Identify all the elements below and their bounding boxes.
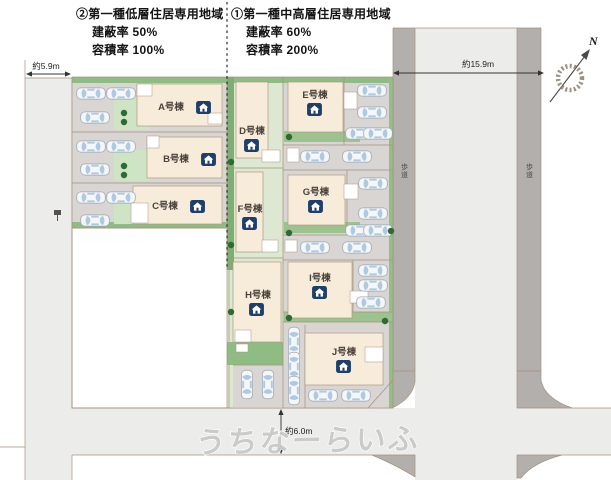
tree-icon	[286, 134, 292, 140]
car-icon	[241, 370, 252, 399]
building-f-label: F号棟	[238, 203, 263, 215]
building-e-label: E号棟	[302, 89, 328, 101]
zoning-right-floor-area: 容積率 200%	[245, 42, 318, 57]
zoning-right-coverage: 建蔽率 60%	[245, 24, 311, 39]
building-c-label: C号棟	[152, 200, 178, 212]
zoning-right-title: ①第一種中高層住居専用地域	[231, 6, 391, 21]
building-h-label: H号棟	[245, 289, 271, 301]
car-icon	[81, 215, 110, 226]
house-icon	[307, 103, 322, 116]
lawn-b	[114, 150, 150, 181]
hedge-east-edge	[389, 77, 393, 408]
tree-icon	[286, 230, 292, 236]
junction-fillet-se	[517, 455, 562, 478]
site-plan-drawing: A号棟 B号棟 C号棟 D号棟 E号棟 F号棟 G号棟 H号棟 I号棟 J号棟	[0, 0, 611, 480]
building-i-label: I号棟	[309, 272, 331, 284]
house-icon	[244, 139, 259, 152]
car-icon	[262, 370, 273, 399]
house-icon	[312, 286, 327, 299]
zoning-info: ②第一種低層住居専用地域 建蔽率 50% 容積率 100% ①第一種中高層住居専…	[76, 6, 391, 57]
building-g-label: G号棟	[303, 186, 330, 198]
car-icon	[301, 242, 330, 253]
house-icon	[242, 217, 257, 230]
house-icon	[190, 200, 205, 213]
junction-fillet-ne	[517, 371, 572, 408]
car-icon	[77, 141, 106, 152]
tree-icon	[388, 228, 394, 234]
parking-h	[233, 365, 283, 407]
tree-icon	[228, 159, 234, 165]
house-icon	[196, 101, 211, 114]
car-icon	[288, 327, 299, 356]
car-icon	[357, 297, 386, 308]
east-road-west-sidewalk	[393, 28, 415, 373]
building-a-label: A号棟	[158, 101, 184, 113]
west-road-width-label: 約5.9m	[32, 61, 59, 71]
watermark: うちなーらいふ	[194, 423, 421, 460]
zoning-left-coverage: 建蔽率 50%	[91, 24, 157, 39]
car-icon	[81, 164, 110, 175]
tree-icon	[121, 172, 127, 178]
car-icon	[359, 265, 388, 276]
zoning-left-title: ②第一種低層住居専用地域	[76, 6, 224, 21]
east-road-width-label: 約15.9m	[462, 59, 494, 69]
car-icon	[359, 178, 388, 189]
house-icon	[201, 153, 216, 166]
building-j-label: J号棟	[332, 346, 357, 358]
car-icon	[288, 376, 299, 405]
tree-icon	[382, 318, 388, 324]
site-plan: A号棟 B号棟 C号棟 D号棟 E号棟 F号棟 G号棟 H号棟 I号棟 J号棟	[0, 0, 611, 480]
watermark-text: うちなーらいふ	[194, 423, 421, 460]
car-icon	[364, 128, 393, 139]
car-icon	[107, 141, 136, 152]
compass-icon: N	[550, 34, 599, 102]
house-icon	[308, 200, 323, 213]
house-icon	[249, 303, 264, 316]
north-label: N	[588, 34, 599, 48]
hedge-zone-boundary	[227, 77, 234, 270]
building-d-label: D号棟	[239, 125, 265, 137]
car-icon	[309, 390, 338, 401]
car-icon	[359, 280, 388, 291]
tree-icon	[121, 119, 127, 125]
car-icon	[358, 107, 387, 118]
car-icon	[358, 85, 387, 96]
tree-icon	[228, 309, 234, 315]
lawn-h	[227, 342, 283, 365]
car-icon	[107, 192, 136, 203]
zoning-left-floor-area: 容積率 100%	[91, 42, 164, 57]
car-icon	[359, 208, 388, 219]
car-icon	[343, 242, 372, 253]
car-icon	[77, 88, 106, 99]
tree-icon	[121, 110, 127, 116]
tree-icon	[286, 315, 292, 321]
sidewalk-label-east: 歩道	[526, 162, 534, 179]
sidewalk-label-west: 歩道	[401, 162, 409, 179]
empty-lot	[72, 228, 229, 408]
car-icon	[107, 88, 136, 99]
car-icon	[81, 112, 110, 123]
junction-fillet-sw	[372, 455, 415, 477]
east-roadway	[415, 28, 517, 480]
north-arrowhead	[581, 49, 590, 60]
east-road-east-sidewalk	[517, 28, 541, 373]
car-icon	[77, 192, 106, 203]
tree-icon	[228, 242, 234, 248]
house-icon	[336, 360, 351, 373]
tree-icon	[121, 163, 127, 169]
car-icon	[343, 151, 372, 162]
car-icon	[342, 390, 371, 401]
car-icon	[301, 151, 330, 162]
building-b-label: B号棟	[163, 153, 189, 165]
